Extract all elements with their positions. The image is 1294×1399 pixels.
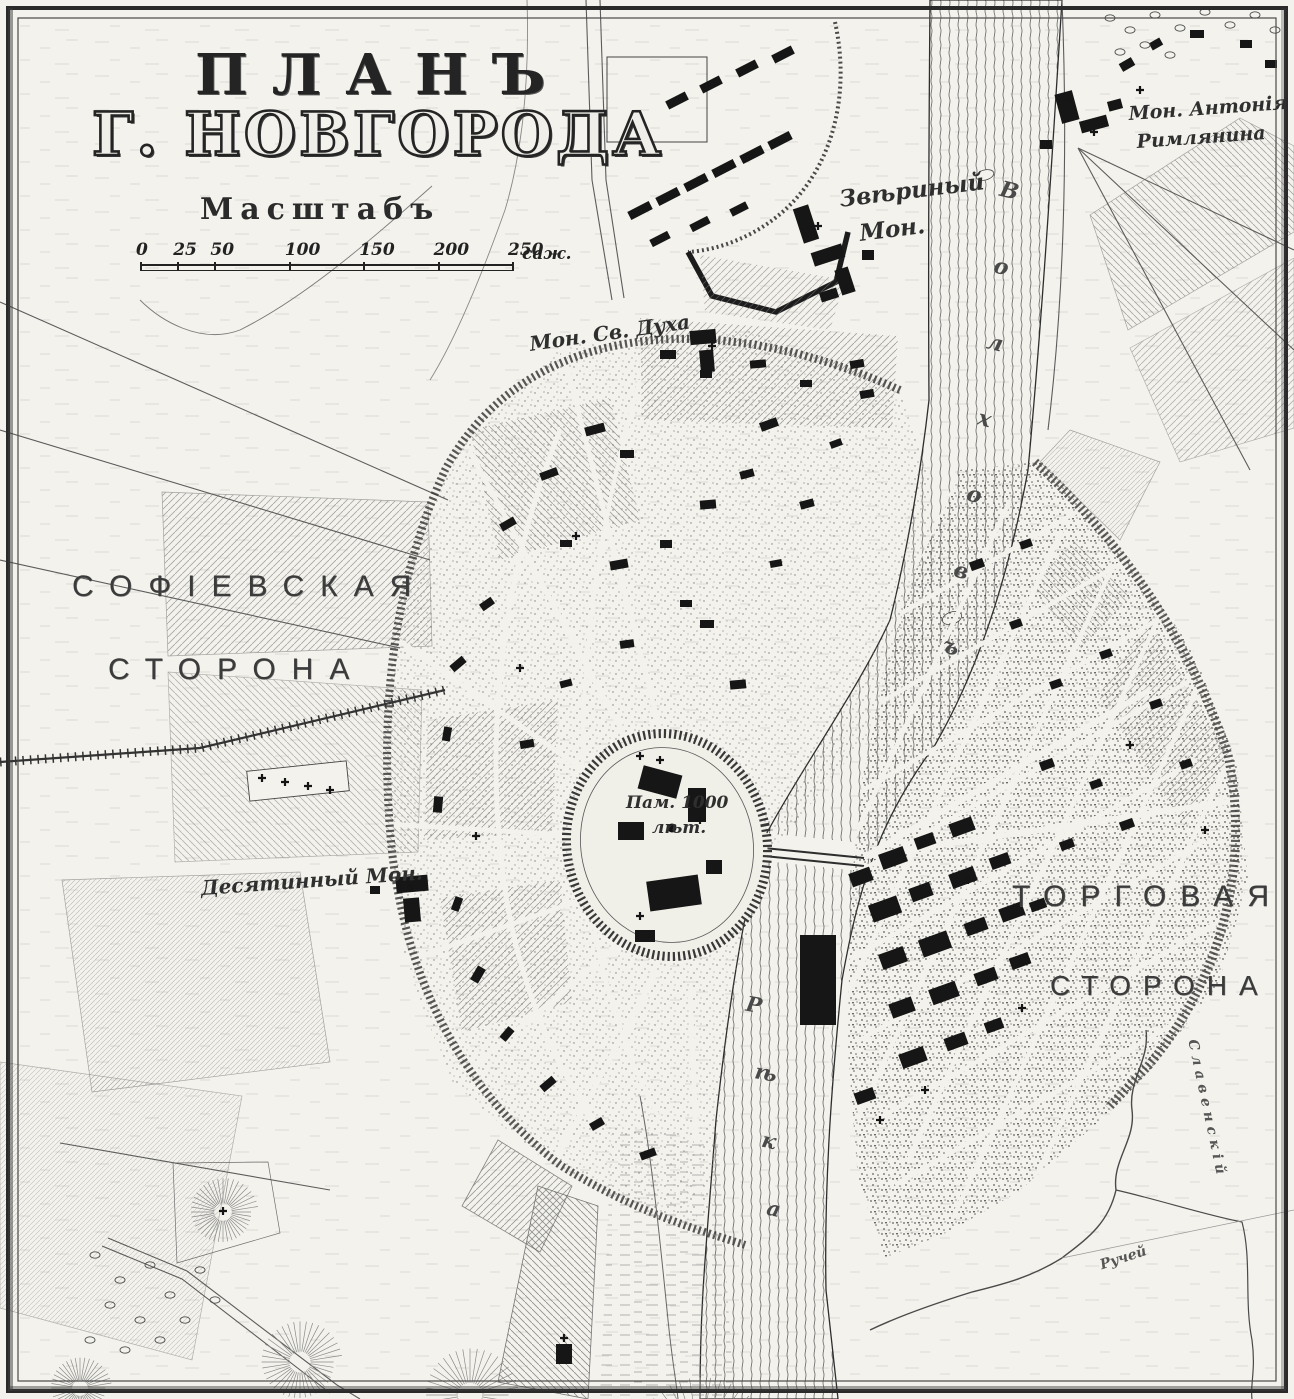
building — [1040, 140, 1052, 149]
building — [1240, 40, 1252, 48]
building — [660, 350, 676, 359]
building — [1265, 60, 1277, 68]
building — [680, 600, 692, 607]
building — [800, 935, 836, 1025]
building — [800, 380, 812, 387]
building — [1190, 30, 1204, 38]
building — [433, 796, 443, 813]
building — [862, 250, 874, 260]
building — [660, 540, 672, 548]
building — [706, 860, 722, 874]
building — [635, 930, 655, 942]
building — [750, 359, 767, 368]
building — [618, 822, 644, 840]
novgorod-map-canvas — [0, 0, 1294, 1399]
millennium-monument-mark — [668, 824, 677, 833]
building — [620, 450, 634, 458]
building — [688, 788, 706, 822]
building — [700, 499, 717, 509]
building — [699, 349, 715, 372]
building — [403, 897, 421, 922]
building — [560, 540, 572, 547]
building — [730, 679, 747, 689]
map-page: ПЛАНЪ Г. НОВГОРОДА Масштабъ 025501001502… — [0, 0, 1294, 1399]
building — [370, 886, 380, 894]
building — [556, 1344, 572, 1364]
building — [700, 620, 714, 628]
